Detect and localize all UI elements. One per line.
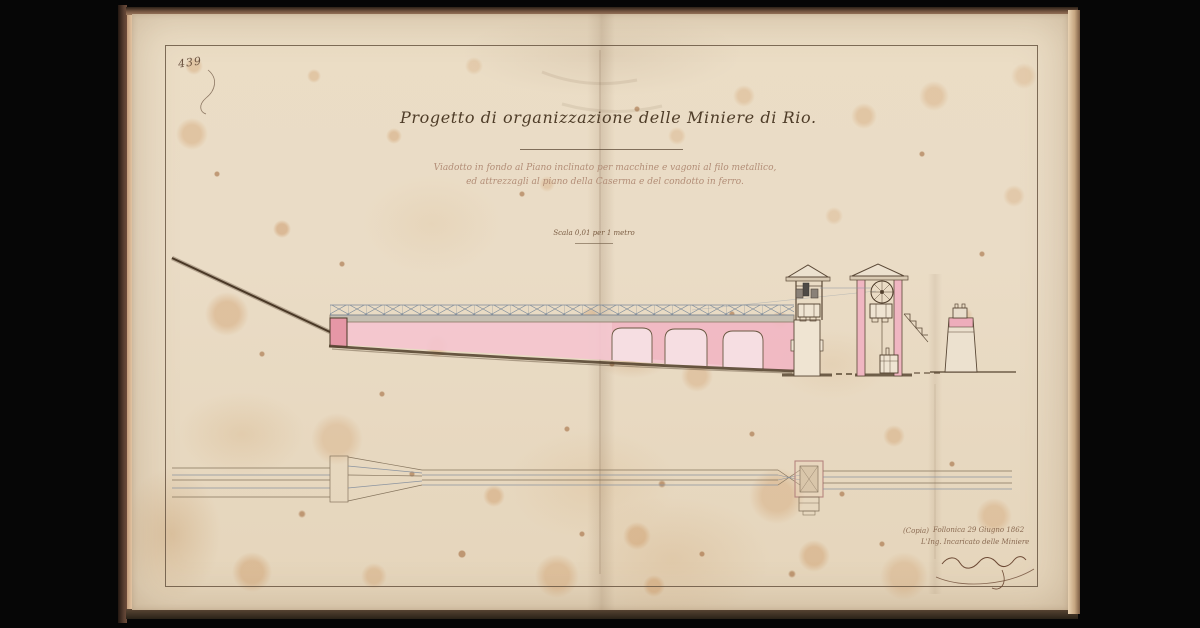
ore-cart bbox=[798, 304, 820, 317]
chimney-pedestal bbox=[945, 304, 977, 372]
pink-wall-section bbox=[857, 278, 865, 376]
plan-view bbox=[172, 456, 1012, 515]
scanned-archive-photo: { "document": { "archive_number": "439",… bbox=[0, 0, 1200, 628]
viaduct-arch bbox=[612, 328, 652, 363]
book-cover-bottom-edge bbox=[126, 609, 1078, 619]
bucket bbox=[811, 289, 818, 298]
bucket bbox=[796, 289, 803, 298]
gable-roof bbox=[852, 264, 904, 276]
signer-role: L'Ing. Incaricato delle Miniere bbox=[921, 538, 1029, 546]
page-title: Progetto di organizzazione delle Miniere… bbox=[400, 108, 800, 127]
roof-overhang bbox=[850, 276, 908, 280]
subtitle-line-2: ed attrezzagli al piano della Caserma e … bbox=[460, 177, 750, 187]
furnace-cart bbox=[880, 355, 898, 373]
number-flourish bbox=[201, 70, 215, 114]
tower-footprint bbox=[795, 461, 823, 515]
lattice-railing bbox=[330, 305, 794, 315]
copy-annotation: (Copia) bbox=[903, 527, 929, 535]
track-lines-left bbox=[172, 468, 330, 497]
viaduct-arch bbox=[665, 329, 707, 366]
technical-drawing bbox=[132, 14, 1068, 610]
roof-overhang bbox=[786, 277, 830, 281]
drawing-sheet: 439 Progetto di organizzazione delle Min… bbox=[132, 14, 1068, 610]
track-lines-right bbox=[823, 471, 1012, 489]
track-funnel bbox=[348, 457, 422, 501]
viaduct-deck bbox=[330, 315, 794, 322]
hoist-tower-right bbox=[820, 264, 928, 376]
subtitle-line-1: Viadotto in fondo al Piano inclinato per… bbox=[430, 163, 780, 173]
ore-cart bbox=[870, 304, 892, 318]
book-spine-edge bbox=[118, 5, 127, 623]
signature-flourish bbox=[936, 557, 1034, 589]
place-and-date: Follonica 29 Giugno 1862 bbox=[933, 526, 1024, 534]
stairs bbox=[904, 314, 928, 335]
scale-note: Scala 0,01 per 1 metro bbox=[542, 229, 646, 237]
abutment-pier bbox=[330, 318, 347, 347]
title-underline bbox=[520, 149, 683, 150]
hoist-machinery bbox=[803, 283, 809, 296]
viaduct-arch bbox=[723, 331, 763, 369]
pink-band bbox=[949, 318, 973, 327]
elevation-view bbox=[172, 258, 1016, 376]
page-stack-edge-right bbox=[1068, 10, 1080, 614]
incline-foot-structure bbox=[330, 456, 348, 502]
scale-underline bbox=[575, 243, 613, 244]
gable-roof bbox=[788, 265, 828, 277]
